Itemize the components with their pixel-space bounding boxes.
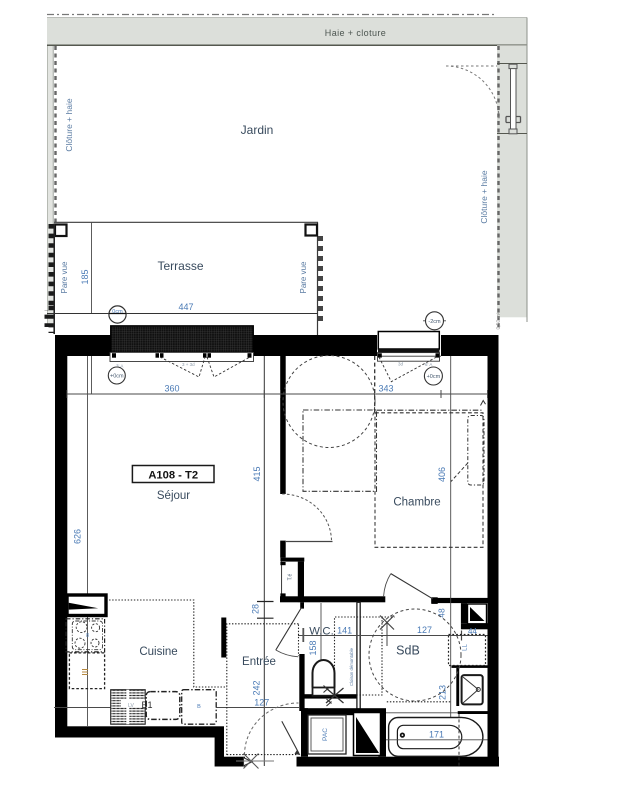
svg-text:171: 171 — [429, 730, 444, 740]
svg-text:127: 127 — [254, 698, 269, 708]
svg-text:A108 - T2: A108 - T2 — [148, 469, 198, 481]
svg-text:B1: B1 — [141, 700, 152, 710]
svg-text:28: 28 — [251, 604, 261, 614]
svg-text:3d: 3d — [398, 362, 404, 367]
svg-text:343: 343 — [378, 383, 393, 393]
svg-text:+0cm: +0cm — [427, 374, 441, 380]
svg-text:141: 141 — [337, 626, 352, 636]
svg-text:0,50 m²: 0,50 m² — [496, 312, 502, 329]
svg-text:Entrée: Entrée — [242, 656, 276, 668]
svg-text:0cm: 0cm — [112, 309, 123, 315]
svg-text:Cuisine: Cuisine — [139, 646, 177, 658]
svg-text:626: 626 — [73, 529, 83, 544]
svg-text:Clôture + haie: Clôture + haie — [64, 98, 74, 151]
svg-text:48: 48 — [437, 608, 447, 618]
svg-text:LV: LV — [128, 703, 134, 709]
svg-text:6' A: 6' A — [425, 362, 432, 367]
svg-text:Cloison démontable: Cloison démontable — [349, 647, 354, 686]
svg-text:185: 185 — [80, 269, 90, 284]
svg-text:Clôture + haie: Clôture + haie — [479, 170, 489, 223]
svg-text:B: B — [197, 704, 201, 710]
svg-text:158: 158 — [308, 640, 318, 655]
svg-text:Chambre: Chambre — [393, 497, 440, 509]
svg-text:Séjour: Séjour — [157, 490, 190, 502]
svg-text:8: 8 — [86, 633, 89, 639]
svg-text:213: 213 — [438, 685, 448, 700]
svg-text:360: 360 — [164, 383, 179, 393]
svg-text:Terrasse: Terrasse — [157, 259, 203, 273]
svg-text:127: 127 — [417, 625, 432, 635]
svg-text:LL: LL — [463, 644, 469, 651]
svg-text:3 + 3d: 3 + 3d — [182, 362, 195, 367]
svg-text:447: 447 — [178, 302, 193, 312]
svg-text:W.C.: W.C. — [309, 625, 333, 637]
svg-text:SdB: SdB — [396, 644, 420, 658]
svg-text:Jardin: Jardin — [241, 123, 274, 137]
svg-text:Pare vue: Pare vue — [299, 261, 308, 294]
svg-text:PAC: PAC — [322, 728, 329, 741]
svg-text:242: 242 — [252, 680, 262, 695]
svg-text:+0cm: +0cm — [110, 374, 124, 380]
svg-text:-2cm: -2cm — [428, 319, 441, 325]
svg-text:415: 415 — [252, 466, 262, 481]
svg-text:T.é: T.é — [288, 573, 294, 580]
svg-text:406: 406 — [437, 467, 447, 482]
svg-text:Pare vue: Pare vue — [60, 261, 69, 294]
svg-text:Haie + cloture: Haie + cloture — [325, 28, 386, 38]
